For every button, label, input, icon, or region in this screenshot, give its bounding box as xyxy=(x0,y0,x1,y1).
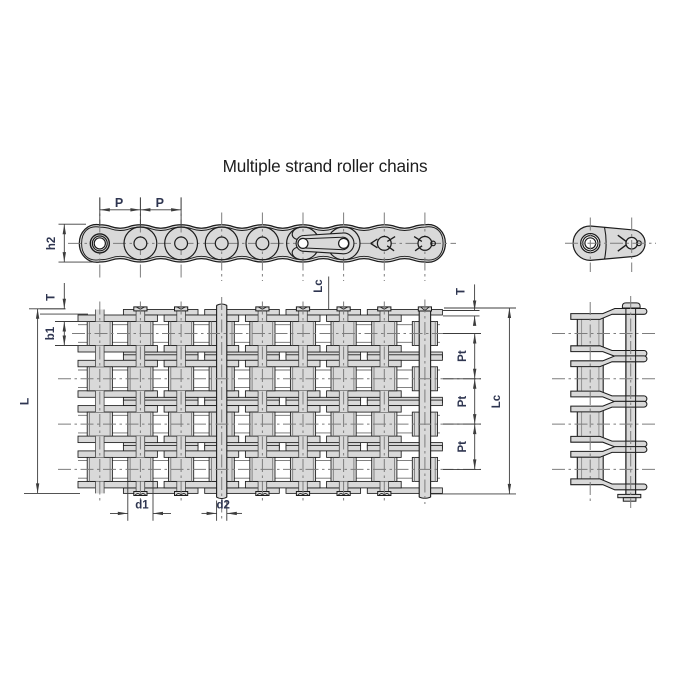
svg-text:Lc: Lc xyxy=(491,394,503,408)
svg-text:T: T xyxy=(46,294,58,301)
svg-text:d2: d2 xyxy=(216,500,229,512)
svg-text:T: T xyxy=(456,288,468,295)
svg-text:h2: h2 xyxy=(46,237,58,250)
svg-text:Pt: Pt xyxy=(457,441,469,453)
svg-text:d1: d1 xyxy=(135,500,149,512)
svg-text:P: P xyxy=(156,196,164,210)
svg-text:Pt: Pt xyxy=(457,396,469,408)
svg-text:Pt: Pt xyxy=(457,350,469,362)
svg-text:b1: b1 xyxy=(45,326,57,340)
svg-text:L: L xyxy=(18,398,32,405)
svg-text:P: P xyxy=(115,196,123,210)
svg-text:Multiple strand roller chains: Multiple strand roller chains xyxy=(223,156,428,176)
svg-text:Lc: Lc xyxy=(313,279,325,293)
